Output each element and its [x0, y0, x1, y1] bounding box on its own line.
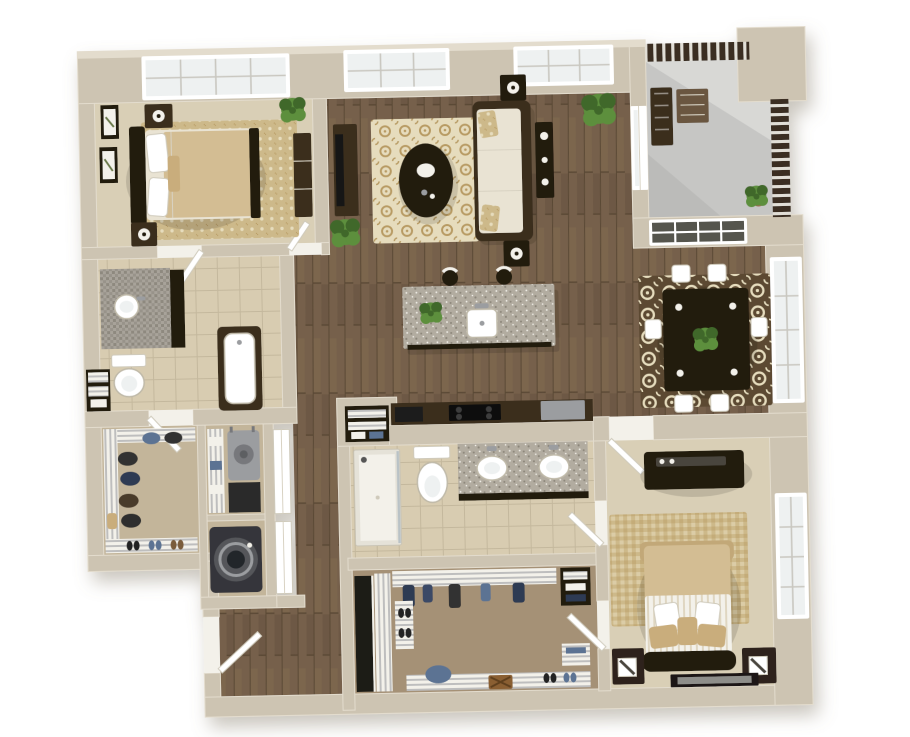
- dining-chair: [675, 395, 693, 412]
- towels: [209, 437, 221, 446]
- threshold: [609, 416, 653, 441]
- dining-chair: [645, 320, 661, 339]
- refrigerator: [541, 400, 585, 420]
- accent-pillow: [167, 156, 180, 192]
- dining-chair: [751, 317, 767, 336]
- wall-art: [99, 147, 118, 183]
- nightstand: [144, 104, 172, 129]
- wire-shelf: [374, 573, 392, 691]
- nightstand: [131, 222, 157, 247]
- wall-bedroom2-top-b: [653, 413, 807, 440]
- balcony-table: [676, 89, 709, 124]
- wall-art: [100, 105, 119, 139]
- accent-pillow: [479, 204, 500, 232]
- towels: [91, 399, 107, 407]
- potted-plant: [581, 93, 616, 127]
- tv: [335, 134, 345, 206]
- balcony-sliding-door: [631, 106, 649, 190]
- rolled-towels: [107, 513, 117, 529]
- laundry-bifold-door: [275, 521, 293, 593]
- entry-floor: [213, 603, 315, 701]
- pantry-shelves: [345, 405, 390, 442]
- tv-console: [333, 124, 359, 216]
- headboard: [129, 126, 147, 224]
- balcony-bench: [650, 87, 673, 145]
- faucet: [487, 446, 497, 451]
- wall-corner-piece: [737, 26, 807, 101]
- dining-balcony-window: [649, 218, 748, 246]
- towels: [210, 461, 222, 470]
- water-heater: [227, 426, 260, 481]
- wall-bedroom2-left-c: [598, 649, 611, 691]
- towels: [369, 431, 383, 438]
- linen-shelves: [86, 369, 111, 411]
- wall-laundry-bottom: [201, 596, 277, 610]
- bar-stool: [496, 267, 512, 285]
- washer: [209, 526, 262, 593]
- towels: [351, 432, 365, 439]
- dresser: [293, 133, 313, 217]
- room-dining: [638, 263, 773, 413]
- bed: [636, 540, 743, 672]
- wire-shelf: [103, 429, 120, 553]
- balcony-railing-right: [770, 99, 790, 217]
- dining-chair: [711, 394, 729, 411]
- bedroom2-window: [775, 493, 810, 620]
- footboard: [249, 128, 261, 218]
- end-table: [500, 74, 527, 101]
- wall-bedroom1-living: [312, 99, 329, 247]
- footboard-bench: [642, 650, 736, 672]
- potted-plant: [279, 97, 306, 123]
- wall-bedroom1-bottom-c: [321, 242, 329, 254]
- dining-chair: [672, 265, 690, 282]
- shoe-rack: [395, 601, 414, 649]
- sofa: [472, 100, 537, 245]
- wall-closet1-bottom: [88, 553, 216, 572]
- utility-cabinet: [228, 482, 261, 513]
- floor-plan-render: [0, 0, 910, 737]
- dining-window: [770, 257, 805, 404]
- faucet: [549, 445, 559, 450]
- potted-plant: [419, 302, 442, 324]
- console-table: [535, 122, 555, 198]
- toilet: [112, 354, 147, 397]
- bathtub: [217, 326, 263, 411]
- wall-bath1-bottom-a: [85, 410, 149, 427]
- room-laundry: [209, 526, 262, 593]
- double-vanity: [458, 441, 589, 501]
- building: [77, 26, 819, 719]
- balcony-railing-top: [645, 42, 749, 62]
- towels: [210, 485, 222, 494]
- wall-bath2-top: [389, 421, 593, 445]
- towels: [566, 594, 586, 601]
- pillow: [147, 177, 169, 216]
- wall-bedroom2-top-a: [593, 417, 609, 441]
- floor-plan-image: [0, 0, 910, 737]
- linen-cubby: [560, 567, 591, 606]
- bed: [129, 124, 261, 225]
- living-window-1: [343, 48, 450, 92]
- potted-plant: [330, 218, 360, 247]
- cooktop: [449, 404, 501, 421]
- utility-bifold-door: [273, 429, 291, 513]
- centerpiece-plant: [693, 327, 719, 352]
- accent-pillow: [677, 617, 698, 645]
- vanity-cabinet: [170, 270, 186, 348]
- floor-frame: [670, 673, 758, 688]
- wire-basket: [562, 643, 590, 666]
- accent-pillow: [697, 623, 727, 647]
- wall-bedroom1-bottom-a: [81, 246, 157, 260]
- wall-bedroom2-left-b: [596, 545, 609, 601]
- wall-bedroom1-bottom-b: [201, 243, 289, 257]
- vanity: [100, 268, 186, 350]
- living-window-2: [513, 45, 614, 87]
- kitchen-counter: [391, 399, 593, 425]
- balcony-plant: [745, 185, 768, 207]
- wall-oven: [395, 407, 423, 423]
- end-table: [503, 240, 530, 267]
- bedroom1-window: [141, 53, 290, 100]
- nightstand: [612, 648, 645, 685]
- towels: [565, 583, 585, 590]
- dining-chair: [708, 264, 726, 281]
- accent-pillow: [648, 624, 679, 649]
- room-utility: [207, 426, 261, 513]
- wall-bath1-right: [280, 255, 298, 423]
- shower: [354, 449, 402, 546]
- faucet: [136, 296, 145, 300]
- pillow: [145, 133, 169, 173]
- threshold: [203, 617, 220, 673]
- kitchen-island: [402, 284, 559, 355]
- bar-stool: [442, 268, 458, 286]
- wall-utility-divider: [207, 514, 265, 521]
